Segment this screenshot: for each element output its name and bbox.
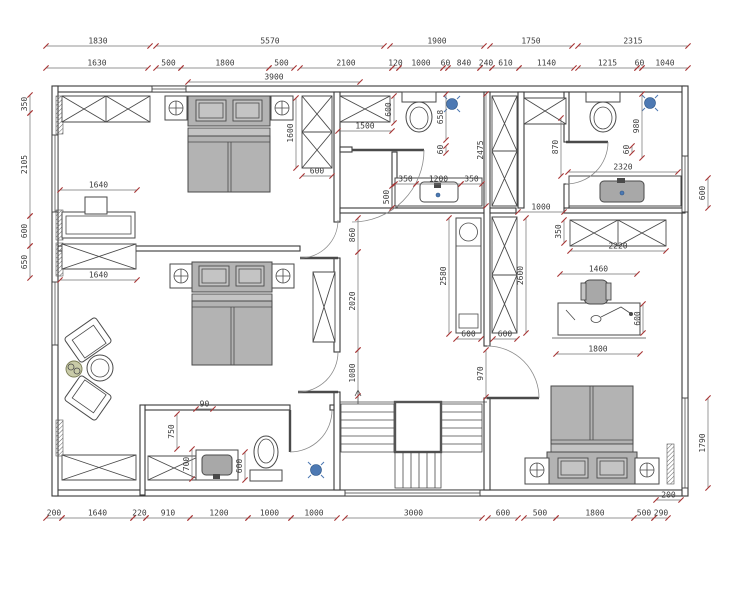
dimension-label: 600 bbox=[384, 102, 393, 117]
bed-mattress bbox=[551, 386, 633, 444]
dimension-label: 1830 bbox=[88, 37, 107, 46]
dimension-label: 60 bbox=[436, 145, 445, 155]
storage-box-bath1 bbox=[340, 96, 390, 122]
bed-band bbox=[192, 294, 272, 301]
dimension-label: 500 bbox=[382, 190, 391, 205]
chair-armrest bbox=[581, 283, 586, 300]
bed-band bbox=[551, 444, 633, 452]
dimension-label: 2315 bbox=[623, 37, 642, 46]
dimension-label: 1640 bbox=[89, 181, 108, 190]
floor-plan-page: 1830557019001750231516305001800500210012… bbox=[0, 0, 740, 600]
dimension-label: 1640 bbox=[89, 271, 108, 280]
dimension-label: 500 bbox=[533, 509, 548, 518]
faucet-icon bbox=[617, 178, 625, 183]
dimension-label: 350 bbox=[554, 224, 563, 239]
closet-niche-wall bbox=[518, 92, 524, 208]
lower-bathroom-west-wall bbox=[140, 405, 145, 495]
dimension-label: 2100 bbox=[336, 59, 355, 68]
dimension-label: 700 bbox=[182, 457, 191, 472]
dimension-label: 1080 bbox=[348, 363, 357, 382]
lamp-icon bbox=[169, 101, 183, 115]
dimension-label: 870 bbox=[551, 140, 560, 155]
dimension-label: 600 bbox=[633, 311, 642, 326]
tall-closet-lower bbox=[492, 217, 517, 333]
dimension-label: 600 bbox=[310, 167, 325, 176]
dimension-label: 910 bbox=[161, 509, 176, 518]
toilet-tank bbox=[250, 470, 282, 481]
drain-icon bbox=[620, 191, 624, 195]
toilet-tank bbox=[586, 92, 620, 102]
cabinet-between-doors bbox=[313, 272, 335, 342]
lamp-icon bbox=[174, 269, 188, 283]
dimension-label: 1500 bbox=[355, 122, 374, 131]
dimension-label: 3900 bbox=[264, 73, 283, 82]
corner-closet-bedroom1 bbox=[302, 96, 332, 168]
dimension-label: 1600 bbox=[286, 123, 295, 142]
dimension-label: 600 bbox=[20, 224, 29, 239]
dimension-label: 2320 bbox=[613, 163, 632, 172]
dimension-label: 1000 bbox=[411, 59, 430, 68]
dimension-label: 2580 bbox=[439, 266, 448, 285]
toilet-tank bbox=[402, 92, 436, 102]
hall-west-wall-lower bbox=[334, 392, 340, 490]
dimension-label: 1040 bbox=[655, 59, 674, 68]
dimension-label: 500 bbox=[637, 509, 652, 518]
dimension-label: 1900 bbox=[427, 37, 446, 46]
dimension-label: 1800 bbox=[588, 345, 607, 354]
dimension-label: 600 bbox=[498, 330, 513, 339]
dimension-label: 3000 bbox=[404, 509, 423, 518]
faucet-icon bbox=[213, 474, 220, 479]
bed-mattress bbox=[188, 136, 270, 192]
bed-mattress bbox=[192, 301, 272, 365]
chair-armrest bbox=[606, 283, 611, 300]
cabinet-bedroom2 bbox=[62, 244, 136, 269]
dimension-label: 1800 bbox=[585, 509, 604, 518]
shower-head-icon bbox=[311, 465, 322, 476]
office-chair bbox=[584, 280, 608, 304]
dimension-label: 600 bbox=[698, 186, 707, 201]
lower-bathroom-north-wall bbox=[145, 405, 290, 410]
dimension-label: 600 bbox=[235, 459, 244, 474]
lower-bathroom-jamb bbox=[330, 405, 334, 410]
shower-head-icon bbox=[447, 99, 458, 110]
hall-east-wall bbox=[484, 92, 490, 346]
dimension-label: 1630 bbox=[87, 59, 106, 68]
dimension-label: 60 bbox=[635, 59, 645, 68]
lamp-icon bbox=[640, 463, 654, 477]
dimension-label: 658 bbox=[436, 110, 445, 125]
dimension-label: 1750 bbox=[521, 37, 540, 46]
dimension-label: 350 bbox=[20, 97, 29, 112]
dimension-label: 200 bbox=[47, 509, 62, 518]
dimension-label: 1140 bbox=[537, 59, 556, 68]
dimension-label: 500 bbox=[161, 59, 176, 68]
corridor-south-wall-b bbox=[564, 208, 685, 213]
dimension-label: 350 bbox=[464, 175, 479, 184]
stair-landing bbox=[395, 402, 441, 452]
dimension-label: 1790 bbox=[698, 433, 707, 452]
dimension-label: 1200 bbox=[429, 175, 448, 184]
desk bbox=[558, 303, 640, 335]
corridor-wardrobe bbox=[524, 98, 566, 124]
floor-plan-canvas: 1830557019001750231516305001800500210012… bbox=[0, 0, 740, 600]
bathroom2-west-wall-lower bbox=[564, 184, 569, 208]
dimension-label: 600 bbox=[461, 330, 476, 339]
bathroom1-south-wall bbox=[340, 208, 484, 213]
dimension-label: 500 bbox=[274, 59, 289, 68]
dimension-label: 90 bbox=[200, 400, 210, 409]
tall-closet-upper bbox=[492, 96, 517, 206]
dimension-label: 750 bbox=[167, 424, 176, 439]
bathroom1-partition-stub bbox=[340, 147, 352, 152]
dimension-label: 2475 bbox=[476, 140, 485, 159]
dimension-label: 60 bbox=[441, 59, 451, 68]
corridor-south-wall-a bbox=[490, 208, 516, 213]
dimension-label: 970 bbox=[476, 366, 485, 381]
cabinet-bottom-left-a bbox=[62, 455, 136, 480]
dimension-label: 1800 bbox=[215, 59, 234, 68]
dimension-label: 2600 bbox=[516, 266, 525, 285]
sink-basin bbox=[202, 455, 232, 475]
radiator-icon bbox=[667, 444, 674, 484]
dimension-label: 350 bbox=[398, 175, 413, 184]
dimension-label: 1215 bbox=[598, 59, 617, 68]
lamp-icon bbox=[530, 463, 544, 477]
dimension-label: 2220 bbox=[608, 242, 627, 251]
dimension-label: 1640 bbox=[88, 509, 107, 518]
dimension-label: 1000 bbox=[304, 509, 323, 518]
dimension-label: 2020 bbox=[348, 291, 357, 310]
lamp-icon bbox=[276, 269, 290, 283]
dimension-label: 290 bbox=[654, 509, 669, 518]
hall-west-wall-upper bbox=[334, 92, 340, 222]
desk-chair bbox=[85, 197, 107, 214]
dimension-label: 860 bbox=[348, 228, 357, 243]
bed-band bbox=[188, 128, 270, 136]
drain-icon bbox=[436, 193, 440, 197]
radiator-icon bbox=[56, 420, 63, 456]
dimension-label: 200 bbox=[661, 491, 676, 500]
dimension-label: 840 bbox=[457, 59, 472, 68]
hall-east-wall-lower bbox=[484, 398, 490, 490]
dimension-label: 610 bbox=[498, 59, 513, 68]
exterior-wall-top bbox=[55, 86, 685, 92]
utility-column bbox=[456, 218, 481, 333]
dimension-label: 650 bbox=[20, 255, 29, 270]
dimension-label: 600 bbox=[496, 509, 511, 518]
dimension-label: 220 bbox=[132, 509, 147, 518]
dimension-label: 60 bbox=[622, 145, 631, 155]
dimension-label: 1000 bbox=[531, 203, 550, 212]
wardrobe-top-left bbox=[62, 96, 150, 122]
dimension-label: 1200 bbox=[209, 509, 228, 518]
dimension-label: 1460 bbox=[589, 265, 608, 274]
dimension-label: 1000 bbox=[260, 509, 279, 518]
dimension-label: 240 bbox=[479, 59, 494, 68]
dimension-label: 980 bbox=[632, 119, 641, 134]
dimension-label: 5570 bbox=[260, 37, 279, 46]
shower-head-icon bbox=[645, 98, 656, 109]
lamp-icon bbox=[275, 101, 289, 115]
dimension-label: 2105 bbox=[20, 155, 29, 174]
